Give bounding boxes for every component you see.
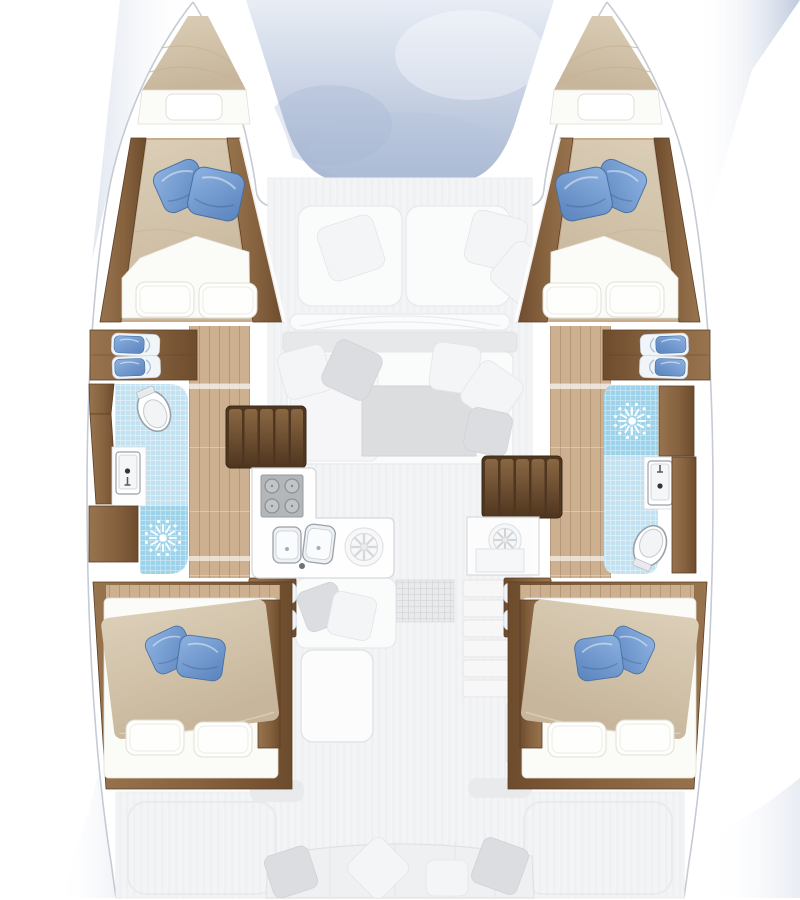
deck-mat [396, 580, 454, 622]
washbasin [116, 452, 140, 494]
cockpit-table [301, 650, 373, 742]
towel-stack [111, 333, 160, 357]
module-tray [476, 549, 524, 572]
bathroom-right [604, 385, 696, 574]
sink-tap [299, 563, 305, 569]
vanity-cabinet [89, 506, 138, 562]
saloon-cushion [462, 406, 514, 458]
floor-plan-scene [0, 0, 800, 900]
vanity-cabinet [672, 457, 696, 573]
aft-bed-pillow-blue [175, 634, 226, 682]
shower-drain-sunburst [144, 519, 181, 556]
saloon [276, 332, 527, 464]
round-hob [345, 528, 383, 566]
shower-drain-sunburst [613, 402, 650, 439]
basin-drain [657, 483, 662, 488]
starboard-module [467, 517, 539, 575]
stove [261, 475, 303, 517]
companionway-stairs-left [226, 406, 306, 468]
companionway-stairs-right [482, 456, 562, 518]
linen-shelf-forward [90, 330, 197, 380]
aft-bed-pillow-white [194, 722, 252, 757]
cockpit-pillow [326, 590, 378, 642]
shower-side-cabinet [659, 386, 694, 456]
floor-plan-svg [0, 0, 800, 900]
transom-pillow [426, 860, 468, 896]
aft-bed-pillow-white [126, 720, 184, 755]
basin-drain [125, 468, 130, 473]
towel-stack [112, 355, 161, 379]
aft-cabin [93, 582, 292, 789]
saloon-table [362, 386, 476, 456]
bow-berth-pillow [166, 94, 222, 120]
washbasin [648, 461, 672, 505]
forward-bed-pillow-blue [186, 165, 247, 223]
forward-bed-pillow-white [136, 282, 194, 317]
forward-bed-pillow-white [199, 283, 257, 318]
